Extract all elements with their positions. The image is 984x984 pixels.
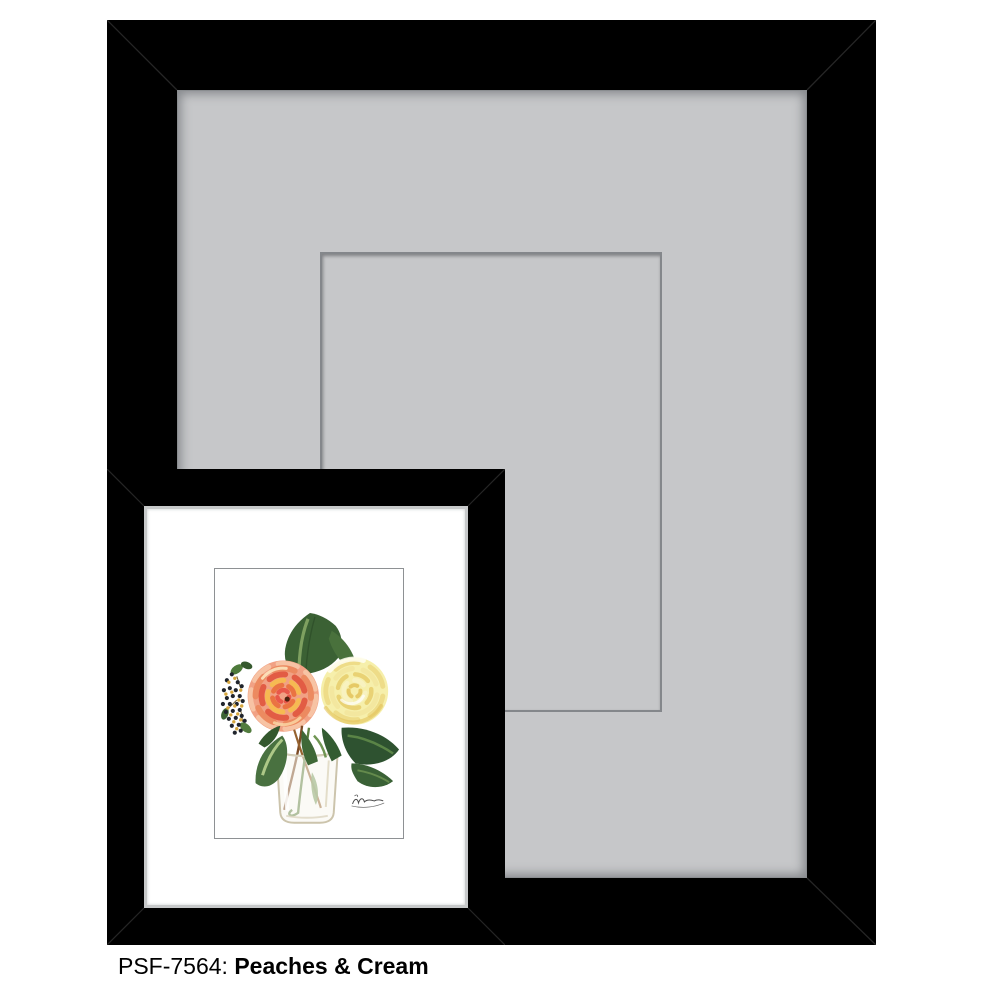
caption: PSF-7564: Peaches & Cream [118,955,429,978]
page-background: PSF-7564: Peaches & Cream [0,0,984,984]
yellow-rose [321,657,388,724]
artwork [214,568,404,839]
caption-title: Peaches & Cream [234,953,428,979]
small-frame [107,469,505,945]
caption-sku: PSF-7564: [118,953,228,979]
signature [352,795,385,807]
artwork-painting [215,569,403,838]
